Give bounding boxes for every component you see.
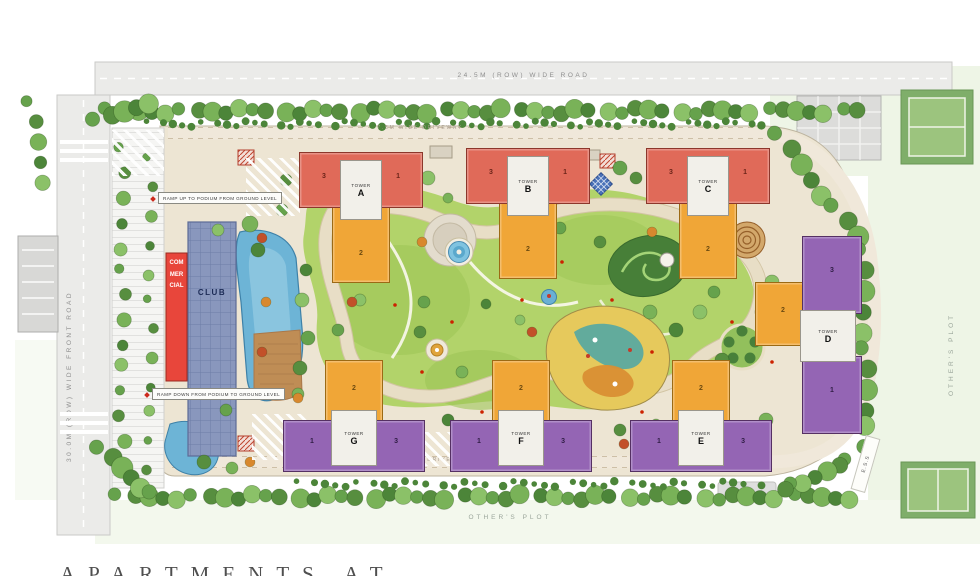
tennis-court-bottom (901, 462, 975, 518)
club-building (188, 222, 236, 456)
tower-e-core: TOWERE (678, 410, 724, 466)
tower-b-core: TOWERB (507, 156, 549, 216)
garden-plaza (426, 339, 448, 361)
crossing-hatch (112, 130, 164, 176)
tower-a: 2 31 TOWERA (299, 150, 421, 283)
commercial-label: COMMERCIAL (168, 258, 185, 293)
tower-b: 2 31 TOWERB (466, 146, 588, 279)
tower-d-core: TOWERD (800, 310, 856, 362)
tower-d-wing-3: 3 (802, 236, 862, 314)
project-caption: APARTMENTS AT (60, 562, 396, 576)
tower-g: 2 13 TOWERG (283, 360, 423, 472)
others-plot-bottom-label: OTHER'S PLOT (430, 514, 590, 521)
pond (542, 290, 557, 305)
tower-c: 2 31 TOWERC (646, 146, 768, 279)
neighbor-building (18, 236, 58, 332)
tower-d-wing-1: 1 (802, 356, 862, 434)
entrance-parking-band (112, 128, 164, 488)
zebra-crossing (60, 140, 108, 166)
driveway-top-label: 7.5M WIDE DRIVEWAY (340, 125, 500, 131)
ramp-up-label: RAMP UP TO PODIUM FROM GROUND LEVEL (158, 192, 282, 204)
tower-g-core: TOWERG (331, 410, 377, 466)
ramp-down-label: RAMP DOWN FROM PODIUM TO GROUND LEVEL (152, 388, 285, 400)
crossing-hatch (246, 158, 300, 216)
others-plot-right-label: OTHER'S PLOT (948, 313, 955, 396)
zebra-crossing (60, 412, 108, 438)
tower-e: 2 13 TOWERE (630, 360, 770, 472)
tennis-court-top (901, 90, 973, 164)
tower-a-core: TOWERA (340, 160, 382, 220)
tower-f: 2 13 TOWERF (450, 360, 590, 472)
club-label: CLUB (188, 288, 236, 297)
site-plan: 24.5M (ROW) WIDE ROAD 30.0M (ROW) WIDE F… (0, 0, 980, 576)
top-road-label: 24.5M (ROW) WIDE ROAD (95, 72, 952, 79)
tower-c-core: TOWERC (687, 156, 729, 216)
tower-d: 2 3 1 TOWERD (755, 236, 867, 434)
tower-f-core: TOWERF (498, 410, 544, 466)
